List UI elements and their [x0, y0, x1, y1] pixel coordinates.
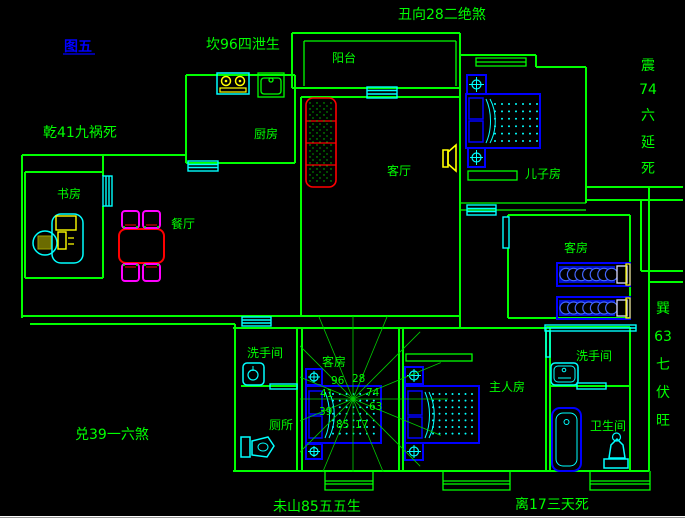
room-label-bathroom-right: 卫生间 [590, 419, 626, 433]
sons-room-shelf [468, 171, 517, 180]
annotation-chou: 丑向28二绝煞 [398, 7, 486, 23]
floor-plan-figure: 96 28 41 74 39 63 85 17 阳台 厨房 客厅 餐厅 书房 儿… [0, 0, 685, 518]
annotation-qian: 乾41九祸死 [43, 125, 117, 141]
floor-plan-canvas: 96 28 41 74 39 63 85 17 阳台 厨房 客厅 餐厅 书房 儿… [0, 0, 685, 518]
windows-and-doors [103, 87, 636, 389]
sons-room-nightstand [467, 75, 486, 94]
room-label-toilet-left: 厕所 [269, 418, 293, 432]
svg-text:延: 延 [641, 135, 655, 151]
svg-text:伏: 伏 [656, 385, 670, 401]
annotation-xun-vertical: 巽 63 七 伏 旺 [654, 301, 672, 429]
svg-text:74: 74 [639, 82, 657, 98]
master-nightstand [405, 367, 423, 384]
room-label-living: 客厅 [387, 163, 411, 178]
bathtub [552, 408, 581, 471]
page-edge-line [0, 516, 685, 518]
svg-text:震: 震 [641, 58, 655, 74]
sons-room-bed [466, 94, 540, 148]
plants [306, 98, 336, 187]
guest-room-beds [557, 263, 630, 319]
figure-label: 图五 [64, 39, 92, 55]
room-label-kitchen: 厨房 [254, 126, 278, 141]
annotation-dui: 兑39一六煞 [75, 427, 149, 443]
toilet-right [604, 433, 628, 468]
toilet-left [241, 437, 274, 457]
washroom-left-sink [243, 363, 264, 385]
svg-text:旺: 旺 [656, 413, 670, 429]
washroom-right-door [546, 331, 550, 357]
room-label-guest-right: 客房 [564, 240, 588, 255]
master-wardrobe [406, 354, 472, 361]
compass-number: 63 [369, 401, 382, 413]
svg-text:巽: 巽 [656, 301, 670, 317]
compass-number: 39 [319, 406, 332, 418]
room-label-washroom-right: 洗手间 [576, 349, 612, 363]
dining-chairs [122, 211, 160, 281]
room-label-washroom-left: 洗手间 [247, 346, 283, 360]
room-label-study: 书房 [57, 186, 81, 201]
annotation-li: 离17三天死 [515, 496, 589, 513]
sons-room-nightstand [468, 148, 485, 167]
compass-number: 74 [366, 387, 380, 399]
study-door [103, 176, 112, 206]
svg-text:六: 六 [641, 108, 655, 124]
compass-number: 17 [355, 419, 368, 431]
room-label-master: 主人房 [489, 379, 525, 394]
dining-table [119, 229, 164, 263]
room-label-balcony: 阳台 [332, 50, 356, 65]
compass-number: 96 [331, 375, 345, 387]
compass-number: 41 [320, 388, 333, 400]
kitchen-stove [217, 73, 249, 94]
svg-text:七: 七 [656, 357, 670, 373]
room-label-guest-center: 客房 [322, 354, 346, 369]
figure-caption: 图五 [63, 39, 95, 55]
compass-number: 85 [336, 419, 349, 431]
fengshui-annotations: 坎96四泄生 丑向28二绝煞 乾41九祸死 兑39一六煞 未山85五五生 离17… [43, 7, 672, 515]
kitchen-sink [258, 73, 284, 97]
washroom-right-window-band [545, 325, 636, 331]
master-bed [405, 386, 479, 443]
svg-text:死: 死 [641, 161, 655, 177]
washroom-right-sink [551, 363, 578, 385]
svg-text:63: 63 [654, 329, 672, 345]
speaker-icon [443, 145, 456, 171]
annotation-weishan: 未山85五五生 [273, 499, 361, 515]
compass-number: 28 [352, 373, 365, 385]
annotation-zhen-vertical: 震 74 六 延 死 [639, 58, 657, 177]
guest-room-center-nightstand [306, 444, 322, 459]
corridor-window [242, 317, 271, 326]
master-nightstand [405, 443, 423, 460]
room-label-dining: 餐厅 [171, 216, 195, 231]
annotation-kan: 坎96四泄生 [206, 37, 280, 53]
guest-room-door [503, 217, 509, 248]
compass-rays [258, 304, 448, 494]
study-desk-set [33, 214, 83, 263]
room-label-sons-room: 儿子房 [525, 166, 561, 181]
